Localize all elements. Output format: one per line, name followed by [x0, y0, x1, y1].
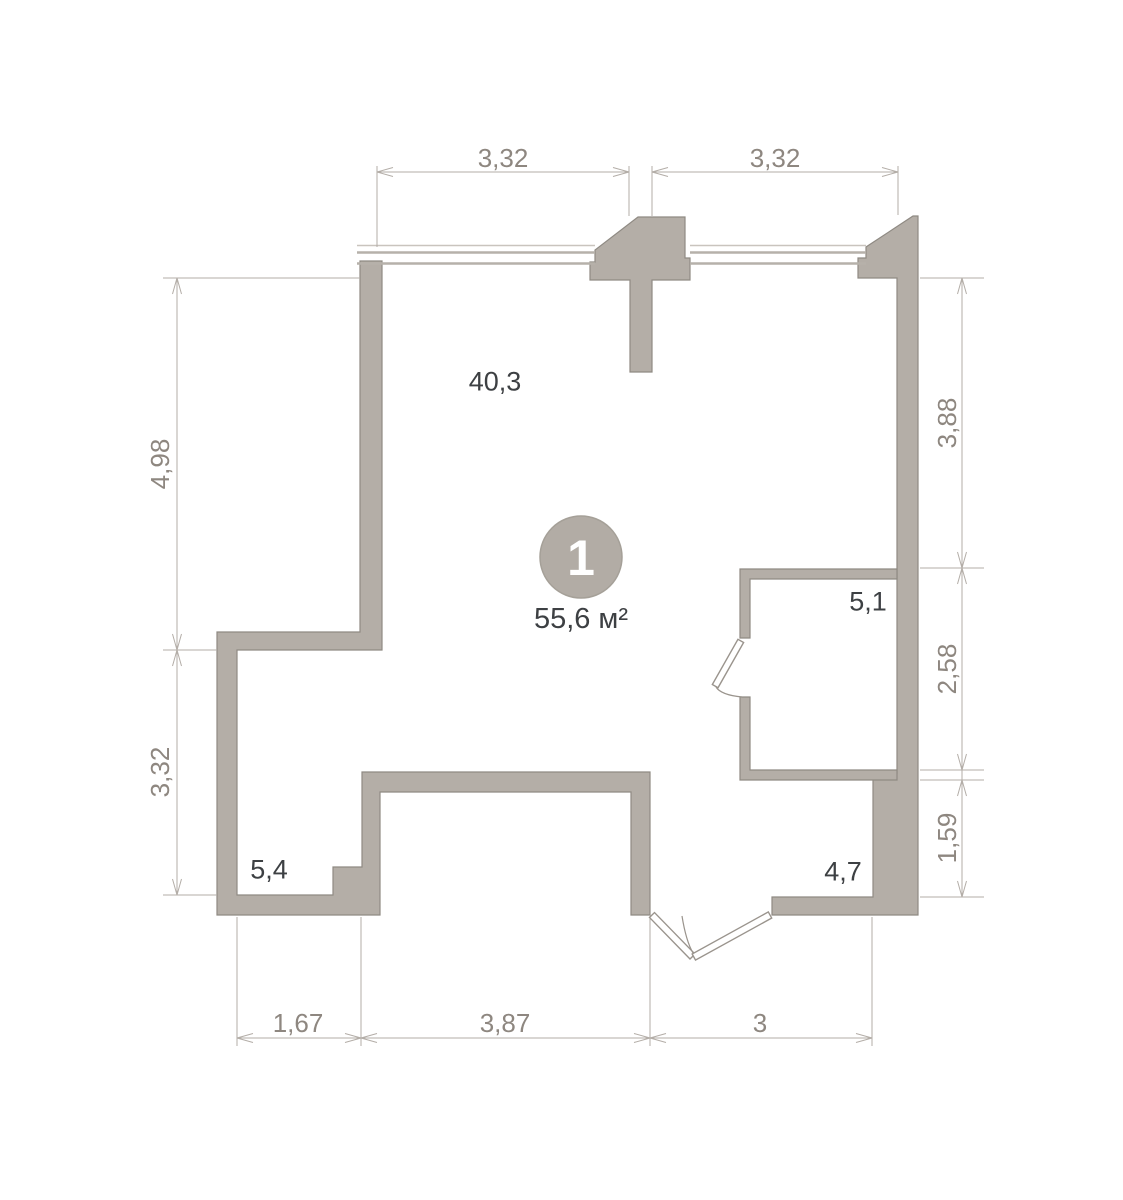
floor-plan-page: 3,32 3,32 4,98 3,32 3,88 2,58 1,59 1,67 …	[0, 0, 1123, 1200]
wall-right-compound	[772, 216, 918, 915]
dim-bottom-right: 3	[753, 1008, 767, 1038]
unit-total-area: 55,6 м²	[534, 603, 628, 635]
dim-left-upper: 4,98	[145, 439, 175, 490]
dim-bottom-left: 1,67	[273, 1008, 324, 1038]
entry-door-leaf-left	[649, 913, 695, 959]
doors	[649, 639, 771, 960]
dim-right-middle: 2,58	[932, 644, 962, 695]
dim-right-upper: 3,88	[932, 398, 962, 449]
entry-door-leaf-right	[692, 912, 772, 960]
partition-storage-bottom-left	[740, 697, 897, 780]
storage-door-leaf	[712, 639, 743, 687]
room-area-entry-hall: 4,7	[824, 856, 862, 886]
room-area-main: 40,3	[469, 366, 522, 396]
unit-badge: 1 55,6 м²	[534, 516, 628, 635]
dim-left-lower: 3,32	[145, 747, 175, 798]
room-area-storage: 5,1	[849, 586, 887, 616]
room-area-bottom-left: 5,4	[250, 854, 288, 884]
dim-top-left: 3,32	[478, 143, 529, 173]
dim-bottom-middle: 3,87	[480, 1008, 531, 1038]
dim-top-right: 3,32	[750, 143, 801, 173]
unit-number: 1	[567, 530, 595, 586]
floor-plan-svg: 3,32 3,32 4,98 3,32 3,88 2,58 1,59 1,67 …	[0, 0, 1123, 1200]
wall-center-pier	[590, 217, 690, 372]
dim-right-lower: 1,59	[932, 813, 962, 864]
storage-door-swing-arc	[716, 687, 742, 697]
